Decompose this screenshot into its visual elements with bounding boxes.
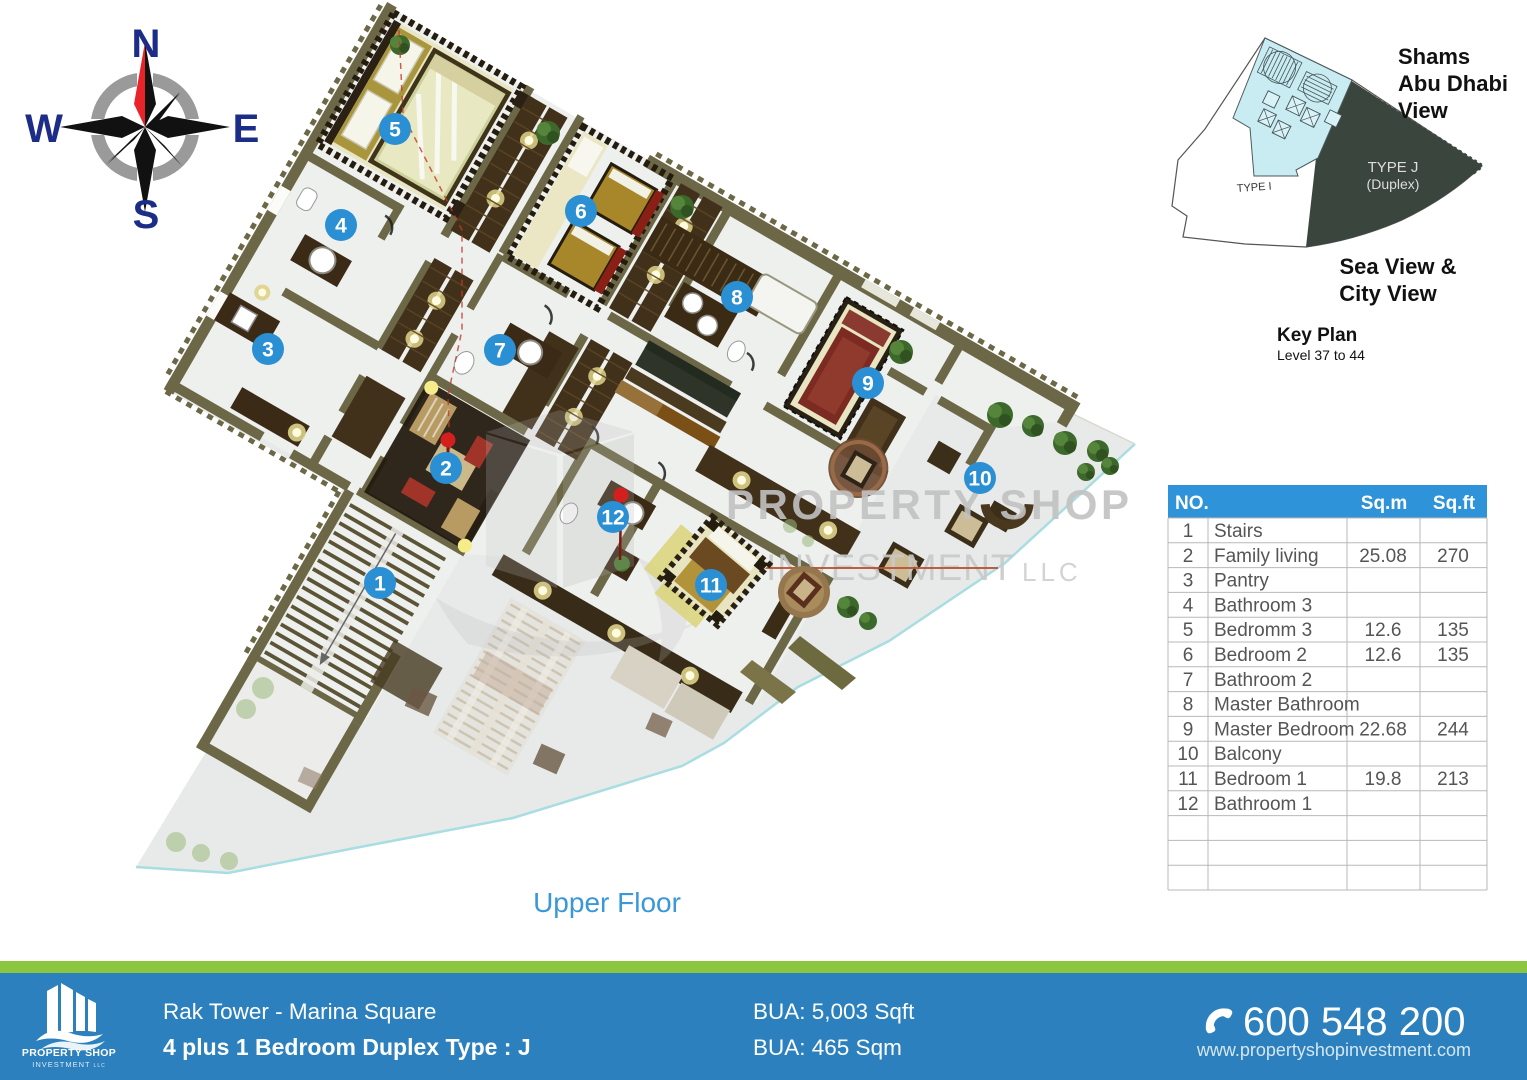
- svg-text:12: 12: [1177, 794, 1198, 815]
- svg-text:Abu Dhabi: Abu Dhabi: [1398, 71, 1508, 96]
- svg-text:Shams: Shams: [1398, 44, 1470, 69]
- svg-text:(Duplex): (Duplex): [1367, 176, 1420, 192]
- svg-text:TYPE I: TYPE I: [1236, 181, 1272, 195]
- svg-text:Stairs: Stairs: [1214, 521, 1263, 542]
- svg-text:Pantry: Pantry: [1214, 571, 1269, 592]
- svg-text:E: E: [233, 107, 260, 151]
- svg-text:10: 10: [968, 468, 991, 491]
- svg-text:3: 3: [1183, 571, 1194, 592]
- svg-text:Bathroom 1: Bathroom 1: [1214, 794, 1312, 815]
- svg-text:Bathroom 3: Bathroom 3: [1214, 595, 1312, 616]
- svg-text:2: 2: [1183, 546, 1194, 567]
- svg-text:600 548 200: 600 548 200: [1243, 1000, 1465, 1044]
- svg-text:4: 4: [335, 215, 347, 238]
- svg-text:NO.: NO.: [1175, 493, 1209, 514]
- svg-text:Bedroom 1: Bedroom 1: [1214, 769, 1307, 790]
- svg-text:5: 5: [389, 119, 401, 142]
- svg-text:1: 1: [374, 573, 386, 596]
- svg-text:Upper Floor: Upper Floor: [533, 887, 681, 918]
- svg-text:6: 6: [1183, 645, 1194, 666]
- svg-text:Balcony: Balcony: [1214, 744, 1282, 765]
- svg-text:10: 10: [1177, 744, 1198, 765]
- svg-text:12.6: 12.6: [1365, 645, 1402, 666]
- svg-text:7: 7: [1183, 670, 1194, 691]
- svg-text:TYPE J: TYPE J: [1368, 159, 1419, 176]
- svg-text:135: 135: [1437, 620, 1469, 641]
- svg-text:9: 9: [1183, 719, 1194, 740]
- svg-text:11: 11: [1178, 769, 1198, 790]
- svg-text:BUA: 5,003 Sqft: BUA: 5,003 Sqft: [753, 999, 915, 1024]
- svg-text:Bathroom 2: Bathroom 2: [1214, 670, 1312, 691]
- svg-text:S: S: [133, 193, 160, 237]
- svg-text:Sq.m: Sq.m: [1361, 493, 1407, 514]
- svg-text:Family living: Family living: [1214, 546, 1319, 567]
- svg-text:Master Bedroom: Master Bedroom: [1214, 719, 1354, 740]
- svg-text:N: N: [132, 22, 161, 66]
- svg-text:PROPERTY SHOP: PROPERTY SHOP: [726, 481, 1132, 528]
- svg-text:8: 8: [731, 287, 743, 310]
- svg-text:Bedroom 2: Bedroom 2: [1214, 645, 1307, 666]
- svg-text:135: 135: [1437, 645, 1469, 666]
- svg-text:PROPERTY SHOP: PROPERTY SHOP: [22, 1047, 116, 1059]
- svg-text:5: 5: [1183, 620, 1194, 641]
- svg-text:BUA: 465 Sqm: BUA: 465 Sqm: [753, 1035, 902, 1060]
- svg-text:9: 9: [862, 373, 874, 396]
- svg-text:2: 2: [440, 458, 452, 481]
- svg-text:View: View: [1398, 98, 1449, 123]
- svg-text:Rak Tower - Marina Square: Rak Tower - Marina Square: [163, 999, 436, 1024]
- svg-text:www.propertyshopinvestment.com: www.propertyshopinvestment.com: [1196, 1040, 1471, 1060]
- svg-text:12.6: 12.6: [1365, 620, 1402, 641]
- svg-text:Sea View &: Sea View &: [1340, 254, 1457, 279]
- svg-text:Sq.ft: Sq.ft: [1433, 493, 1476, 514]
- svg-text:6: 6: [575, 201, 587, 224]
- svg-text:25.08: 25.08: [1359, 546, 1407, 567]
- svg-text:11: 11: [700, 575, 723, 598]
- svg-text:4 plus 1 Bedroom Duplex Type :: 4 plus 1 Bedroom Duplex Type : J: [163, 1034, 531, 1060]
- svg-text:244: 244: [1437, 719, 1469, 740]
- svg-text:Master Bathroom: Master Bathroom: [1214, 695, 1360, 716]
- svg-text:W: W: [25, 107, 63, 151]
- svg-text:22.68: 22.68: [1359, 719, 1407, 740]
- svg-text:7: 7: [494, 340, 506, 363]
- svg-text:City View: City View: [1339, 281, 1437, 306]
- svg-text:8: 8: [1183, 695, 1194, 716]
- svg-text:4: 4: [1183, 595, 1194, 616]
- svg-text:Key Plan: Key Plan: [1277, 325, 1357, 346]
- svg-text:12: 12: [601, 507, 624, 530]
- svg-text:3: 3: [262, 339, 274, 362]
- svg-text:LLC: LLC: [1022, 557, 1082, 587]
- svg-text:19.8: 19.8: [1365, 769, 1402, 790]
- svg-text:Level 37 to 44: Level 37 to 44: [1277, 347, 1365, 363]
- svg-text:213: 213: [1437, 769, 1469, 790]
- svg-text:Bedromm 3: Bedromm 3: [1214, 620, 1312, 641]
- svg-text:270: 270: [1437, 546, 1469, 567]
- svg-text:1: 1: [1183, 521, 1194, 542]
